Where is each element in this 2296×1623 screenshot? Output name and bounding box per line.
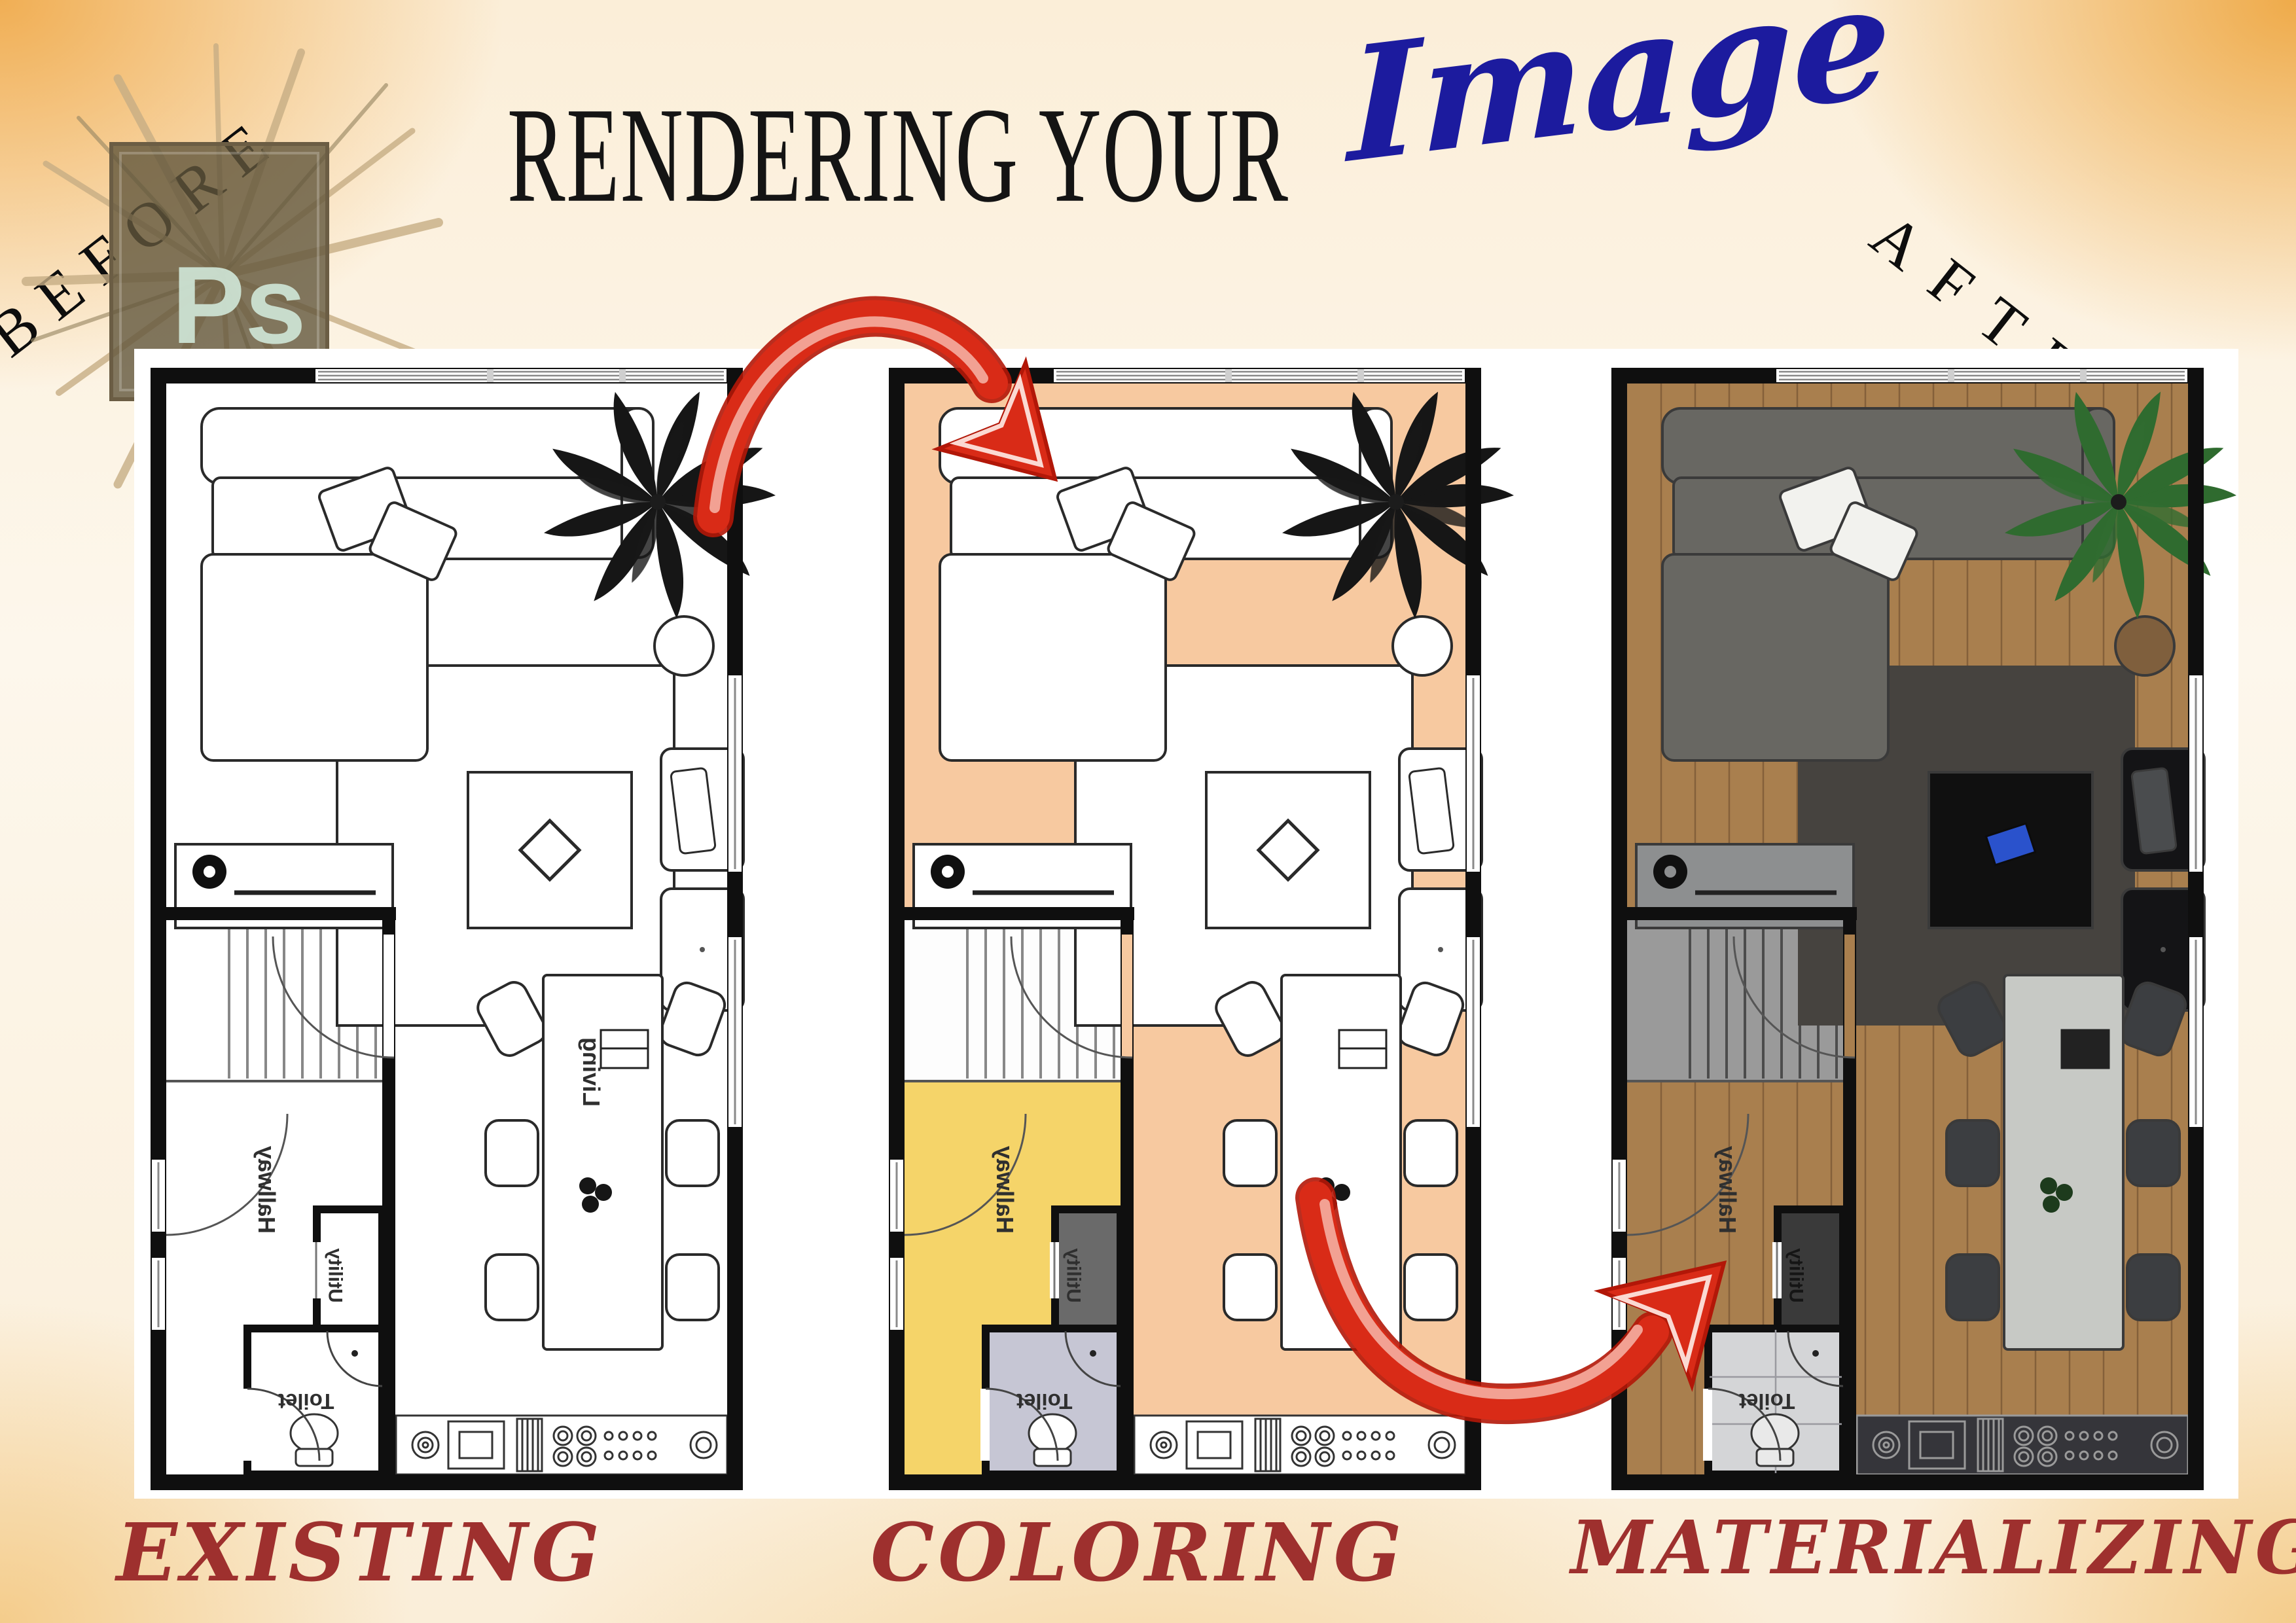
room-label-living: Living	[577, 1037, 605, 1107]
caption-existing: EXISTING	[111, 1505, 609, 1616]
poster-canvas: RENDERING YOUR Image BEFORE AFTER	[0, 0, 2296, 1623]
caption-coloring: COLORING	[870, 1505, 1394, 1616]
room-label-toilet: Toilet	[278, 1389, 334, 1414]
page-title: RENDERING YOUR	[507, 77, 1200, 267]
room-label-hallway: Hallway	[991, 1146, 1018, 1234]
caption-materializing: MATERIALIZING	[1571, 1505, 2278, 1616]
page-title-highlight: Image	[1348, 0, 1891, 198]
curved-arrow-icon-1	[668, 255, 1100, 582]
room-label-hallway: Hallway	[253, 1146, 280, 1234]
room-label-utility: Utility	[324, 1248, 346, 1302]
room-label-utility: Utility	[1785, 1248, 1807, 1302]
room-label-toilet: Toilet	[1016, 1389, 1073, 1414]
room-label-utility: Utility	[1062, 1248, 1085, 1302]
floor-plan-existing: Living Hallway Utility Toilet	[151, 368, 743, 1490]
curved-arrow-icon-2	[1276, 1152, 1787, 1479]
